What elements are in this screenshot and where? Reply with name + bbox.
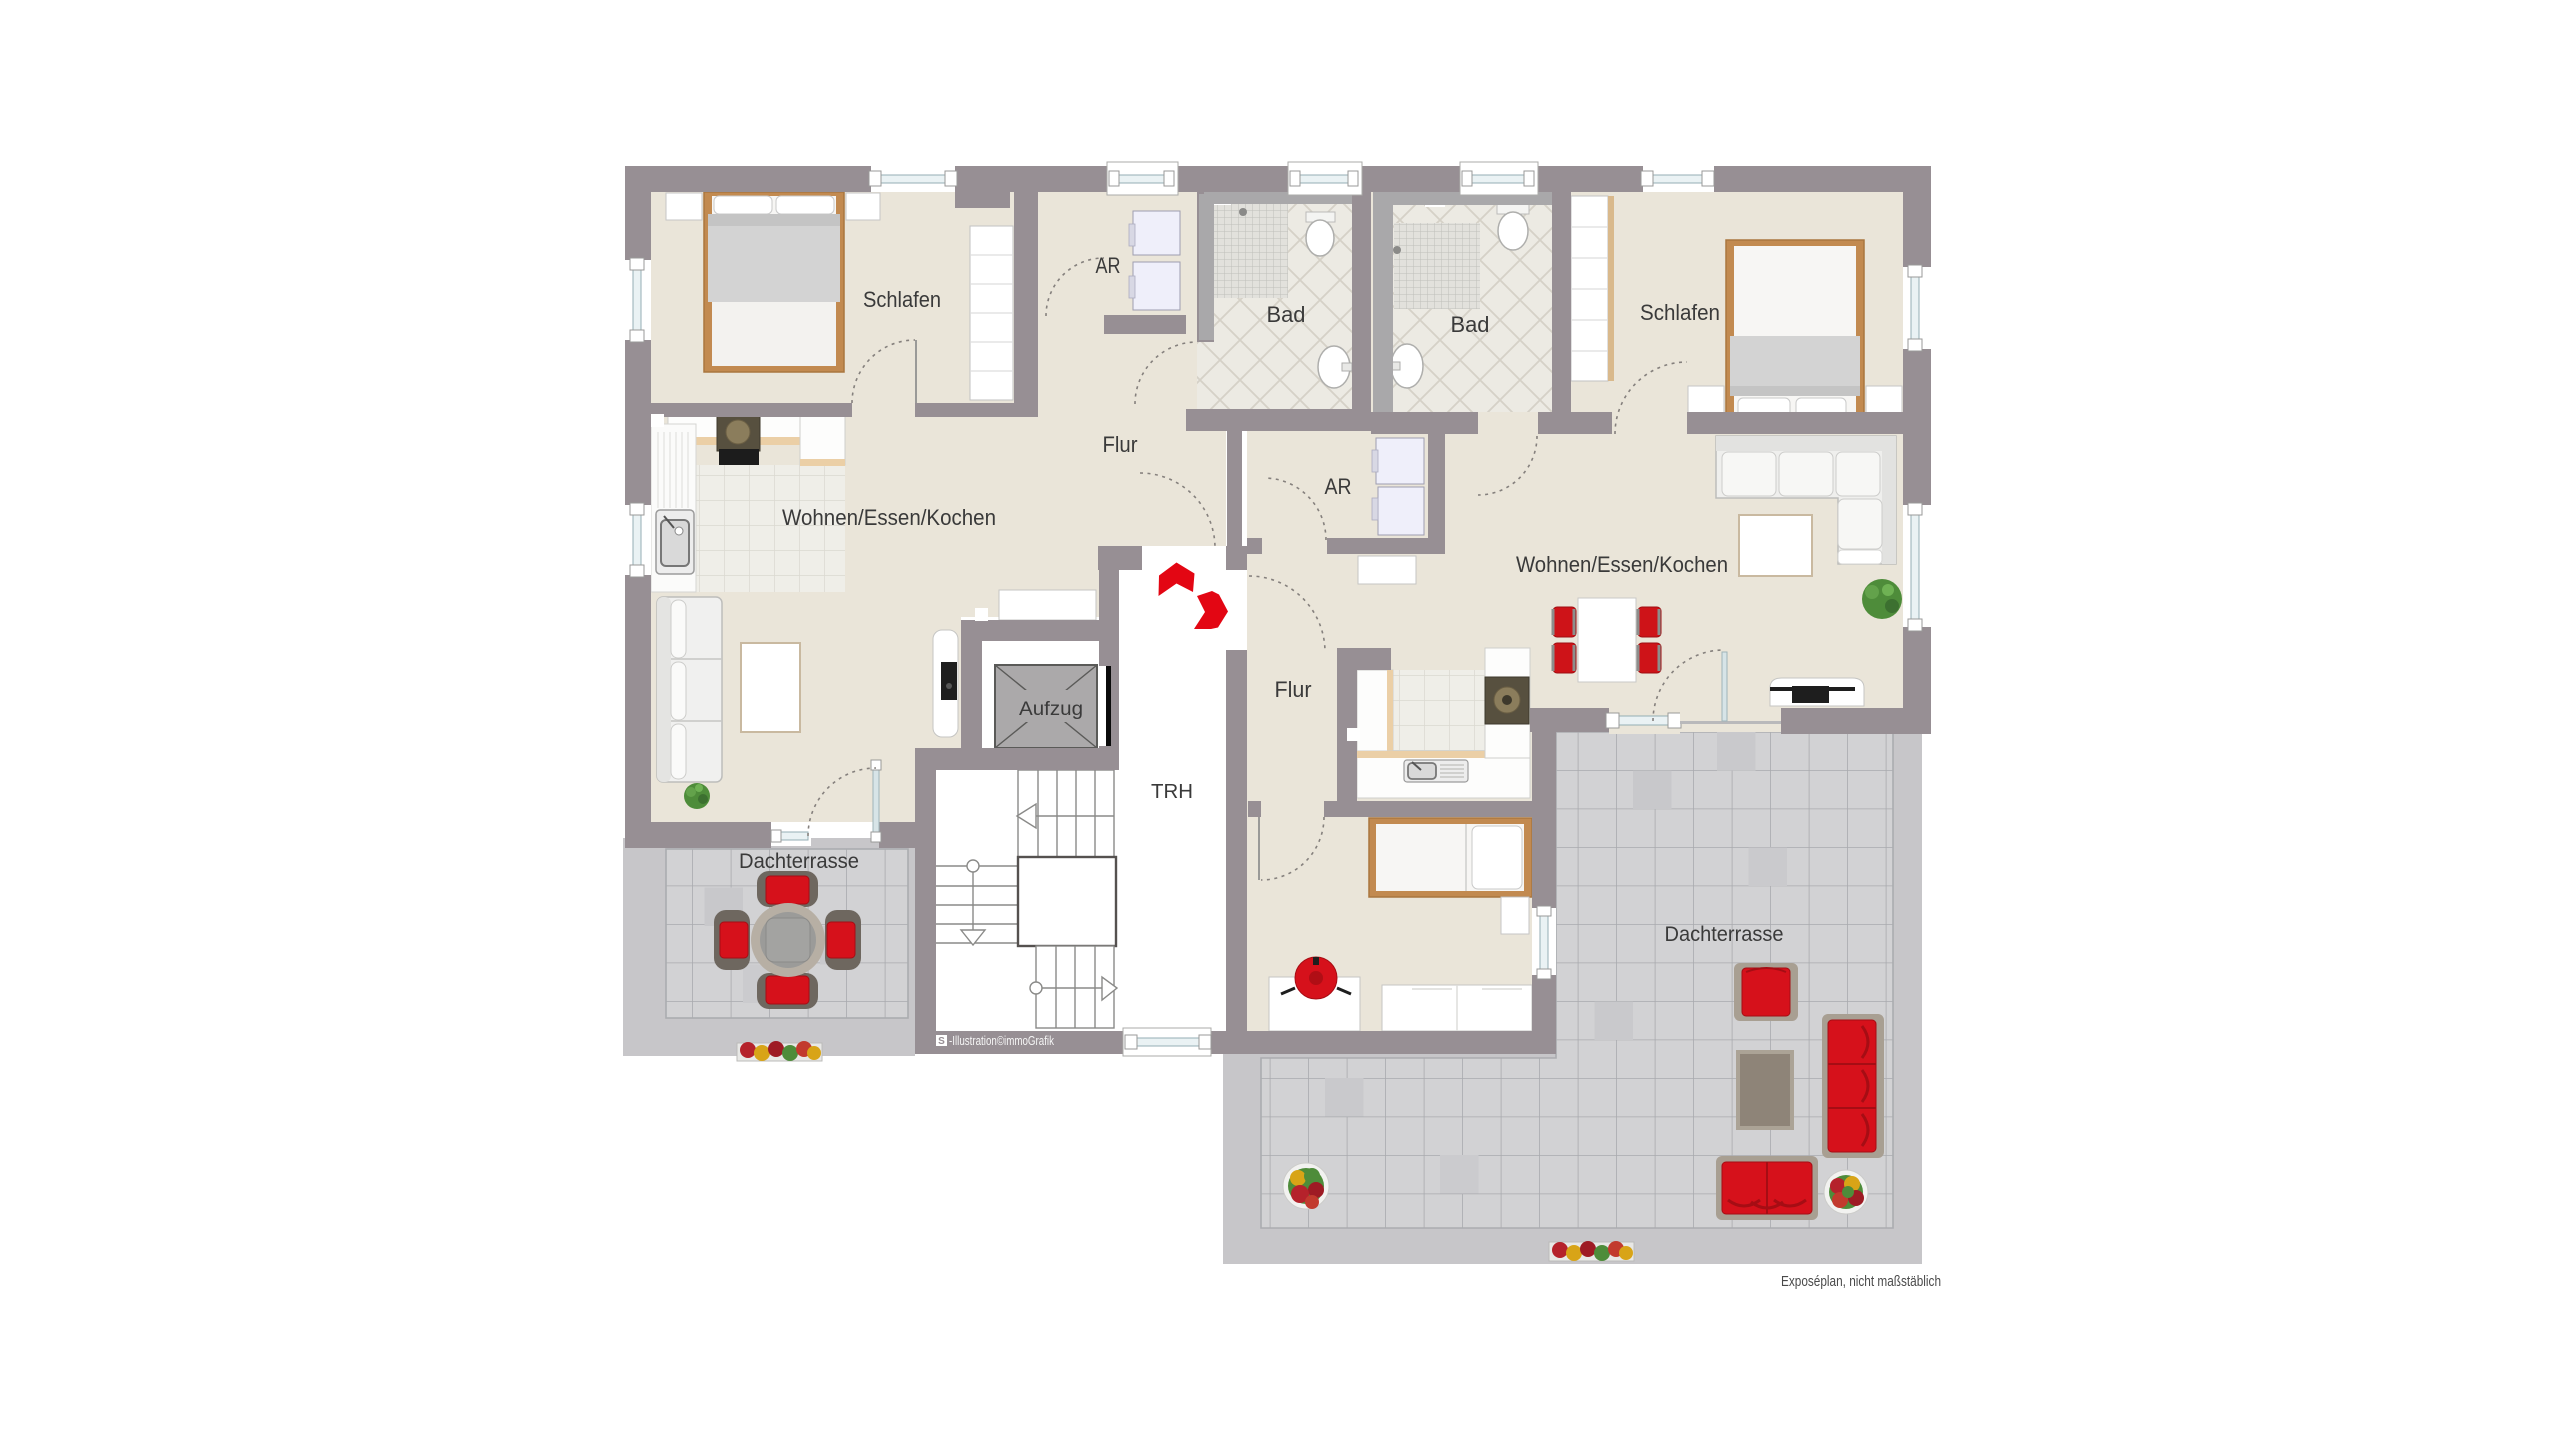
svg-text:Wohnen/Essen/Kochen: Wohnen/Essen/Kochen (782, 505, 996, 530)
svg-text:Aufzug: Aufzug (1019, 699, 1083, 720)
svg-text:Bad: Bad (1267, 302, 1306, 327)
svg-text:Wohnen/Essen/Kochen: Wohnen/Essen/Kochen (1516, 552, 1728, 577)
svg-text:Schlafen: Schlafen (863, 287, 941, 312)
svg-text:Dachterrasse: Dachterrasse (1665, 923, 1784, 946)
svg-text:Exposéplan, nicht maßstäblich: Exposéplan, nicht maßstäblich (1781, 1273, 1941, 1290)
svg-text:Flur: Flur (1275, 677, 1312, 702)
svg-text:AR: AR (1325, 474, 1352, 499)
svg-text:S: S (938, 1036, 945, 1047)
svg-text:Flur: Flur (1103, 432, 1138, 457)
svg-text:Schlafen: Schlafen (1640, 300, 1720, 325)
svg-text:AR: AR (1096, 253, 1121, 278)
svg-text:TRH: TRH (1151, 781, 1193, 803)
svg-text:-Illustration©immoGrafik: -Illustration©immoGrafik (949, 1034, 1055, 1048)
svg-text:Bad: Bad (1451, 312, 1490, 337)
svg-text:Dachterrasse: Dachterrasse (739, 850, 859, 873)
